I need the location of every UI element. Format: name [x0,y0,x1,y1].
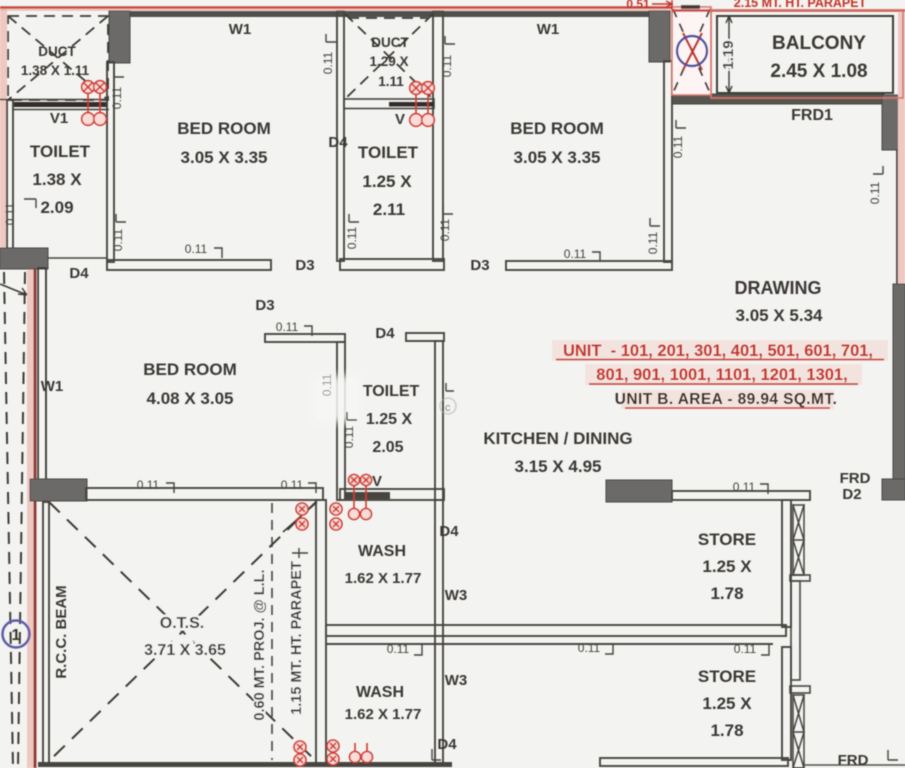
svg-text:3.05 X 3.35: 3.05 X 3.35 [181,148,268,167]
svg-text:0.11: 0.11 [345,226,359,249]
svg-text:2.09: 2.09 [40,198,73,217]
svg-text:D4: D4 [375,325,395,342]
svg-text:2.11: 2.11 [373,200,405,219]
svg-text:0.11: 0.11 [734,642,757,656]
svg-text:1.11: 1.11 [378,74,404,89]
svg-text:0.11: 0.11 [185,242,208,256]
svg-text:DUCT: DUCT [38,44,76,59]
svg-text:D4: D4 [439,523,459,540]
svg-text:0.11: 0.11 [281,478,304,492]
svg-text:4.08 X 3.05: 4.08 X 3.05 [147,389,234,408]
svg-text:1.78: 1.78 [710,584,743,603]
svg-text:D2: D2 [842,486,861,503]
svg-text:0.11: 0.11 [110,86,124,109]
svg-text:0.11: 0.11 [578,641,601,655]
svg-text:1.62 X 1.77: 1.62 X 1.77 [345,706,422,723]
svg-text:1.19: 1.19 [720,40,737,69]
svg-text:TOILET: TOILET [358,143,419,162]
svg-text:UNIT - 101, 201, 301, 401, 50: UNIT - 101, 201, 301, 401, 501, 601, 701… [563,342,873,360]
svg-text:D4: D4 [437,736,457,753]
svg-text:0.11: 0.11 [646,231,660,254]
svg-text:1.38 X 1.11: 1.38 X 1.11 [21,63,90,78]
svg-text:D3: D3 [255,297,274,314]
svg-text:3.05 X 3.35: 3.05 X 3.35 [514,148,601,167]
svg-text:0.11: 0.11 [342,425,356,448]
svg-text:0.11: 0.11 [137,478,160,492]
svg-text:D4: D4 [328,134,348,151]
svg-text:1.25 X: 1.25 X [702,694,752,713]
svg-text:c: c [445,402,451,414]
svg-text:1.38 X: 1.38 X [32,170,82,189]
svg-text:0.11: 0.11 [868,181,882,204]
svg-text:1.25 X: 1.25 X [702,557,752,576]
svg-text:FRD: FRD [838,752,869,768]
svg-text:V: V [395,111,405,128]
svg-text:D4: D4 [69,265,89,282]
svg-text:DRAWING: DRAWING [735,278,822,298]
svg-text:1.29 X: 1.29 X [369,54,408,69]
svg-text:WASH: WASH [358,543,406,560]
svg-text:0.11: 0.11 [440,54,454,77]
svg-text:W3: W3 [445,587,468,604]
svg-text:BED ROOM: BED ROOM [510,119,604,138]
svg-text:0.11: 0.11 [320,373,334,396]
svg-text:1.25 X: 1.25 X [366,411,413,428]
svg-text:W1: W1 [537,21,560,38]
svg-text:0.60 MT. PROJ. @ L.L.: 0.60 MT. PROJ. @ L.L. [252,569,268,720]
svg-text:2.05: 2.05 [372,439,403,456]
svg-text:3.15 X 4.95: 3.15 X 4.95 [515,457,602,476]
svg-text:1.78: 1.78 [710,721,743,740]
svg-text:0.11: 0.11 [111,228,125,251]
svg-text:0.11: 0.11 [564,247,587,261]
svg-text:R.C.C. BEAM: R.C.C. BEAM [53,585,70,678]
svg-text:1: 1 [12,627,21,644]
svg-text:V1: V1 [50,110,68,127]
svg-text:3.71 X 3.65: 3.71 X 3.65 [144,642,226,659]
svg-text:2.45 X 1.08: 2.45 X 1.08 [770,61,867,82]
svg-text:801, 901, 1001, 1101, 1201, 13: 801, 901, 1001, 1101, 1201, 1301, [596,366,847,384]
svg-text:FRD: FRD [840,470,871,487]
svg-text:WASH: WASH [356,684,404,701]
svg-text:2.15 MT. HT. PARAPET: 2.15 MT. HT. PARAPET [734,0,867,10]
svg-text:3.05 X 5.34: 3.05 X 5.34 [736,306,824,325]
svg-text:UNIT B. AREA - 89.94 SQ.MT.: UNIT B. AREA - 89.94 SQ.MT. [615,391,837,408]
svg-text:V: V [372,473,382,490]
svg-text:0.11: 0.11 [733,480,756,494]
svg-text:0.11: 0.11 [276,320,299,334]
svg-text:0.11: 0.11 [438,218,452,241]
svg-text:0.11: 0.11 [671,135,685,158]
svg-text:0.51: 0.51 [626,0,650,11]
svg-text:KITCHEN / DINING: KITCHEN / DINING [483,429,632,448]
svg-text:BALCONY: BALCONY [772,33,866,54]
svg-text:FRD1: FRD1 [791,107,833,124]
svg-text:0.11: 0.11 [387,642,410,656]
svg-text:BED ROOM: BED ROOM [177,119,271,138]
svg-text:BED ROOM: BED ROOM [143,360,237,379]
svg-text:W1: W1 [41,378,64,395]
svg-text:0.11: 0.11 [321,51,335,74]
svg-text:STORE: STORE [698,667,756,686]
svg-text:DUCT: DUCT [371,35,409,50]
svg-text:D3: D3 [470,257,489,274]
svg-text:D3: D3 [295,257,314,274]
svg-text:O.T.S.: O.T.S. [160,615,204,632]
svg-text:TOILET: TOILET [30,142,91,161]
svg-text:1.62 X 1.77: 1.62 X 1.77 [345,570,422,587]
svg-text:W1: W1 [229,21,252,38]
svg-text:1.25 X: 1.25 X [362,172,412,191]
svg-text:0.11: 0.11 [3,202,17,225]
svg-text:1.15 MT. HT. PARAPET: 1.15 MT. HT. PARAPET [289,561,305,715]
svg-text:STORE: STORE [698,530,756,549]
svg-text:TOILET: TOILET [363,383,420,400]
svg-text:W3: W3 [445,672,468,689]
